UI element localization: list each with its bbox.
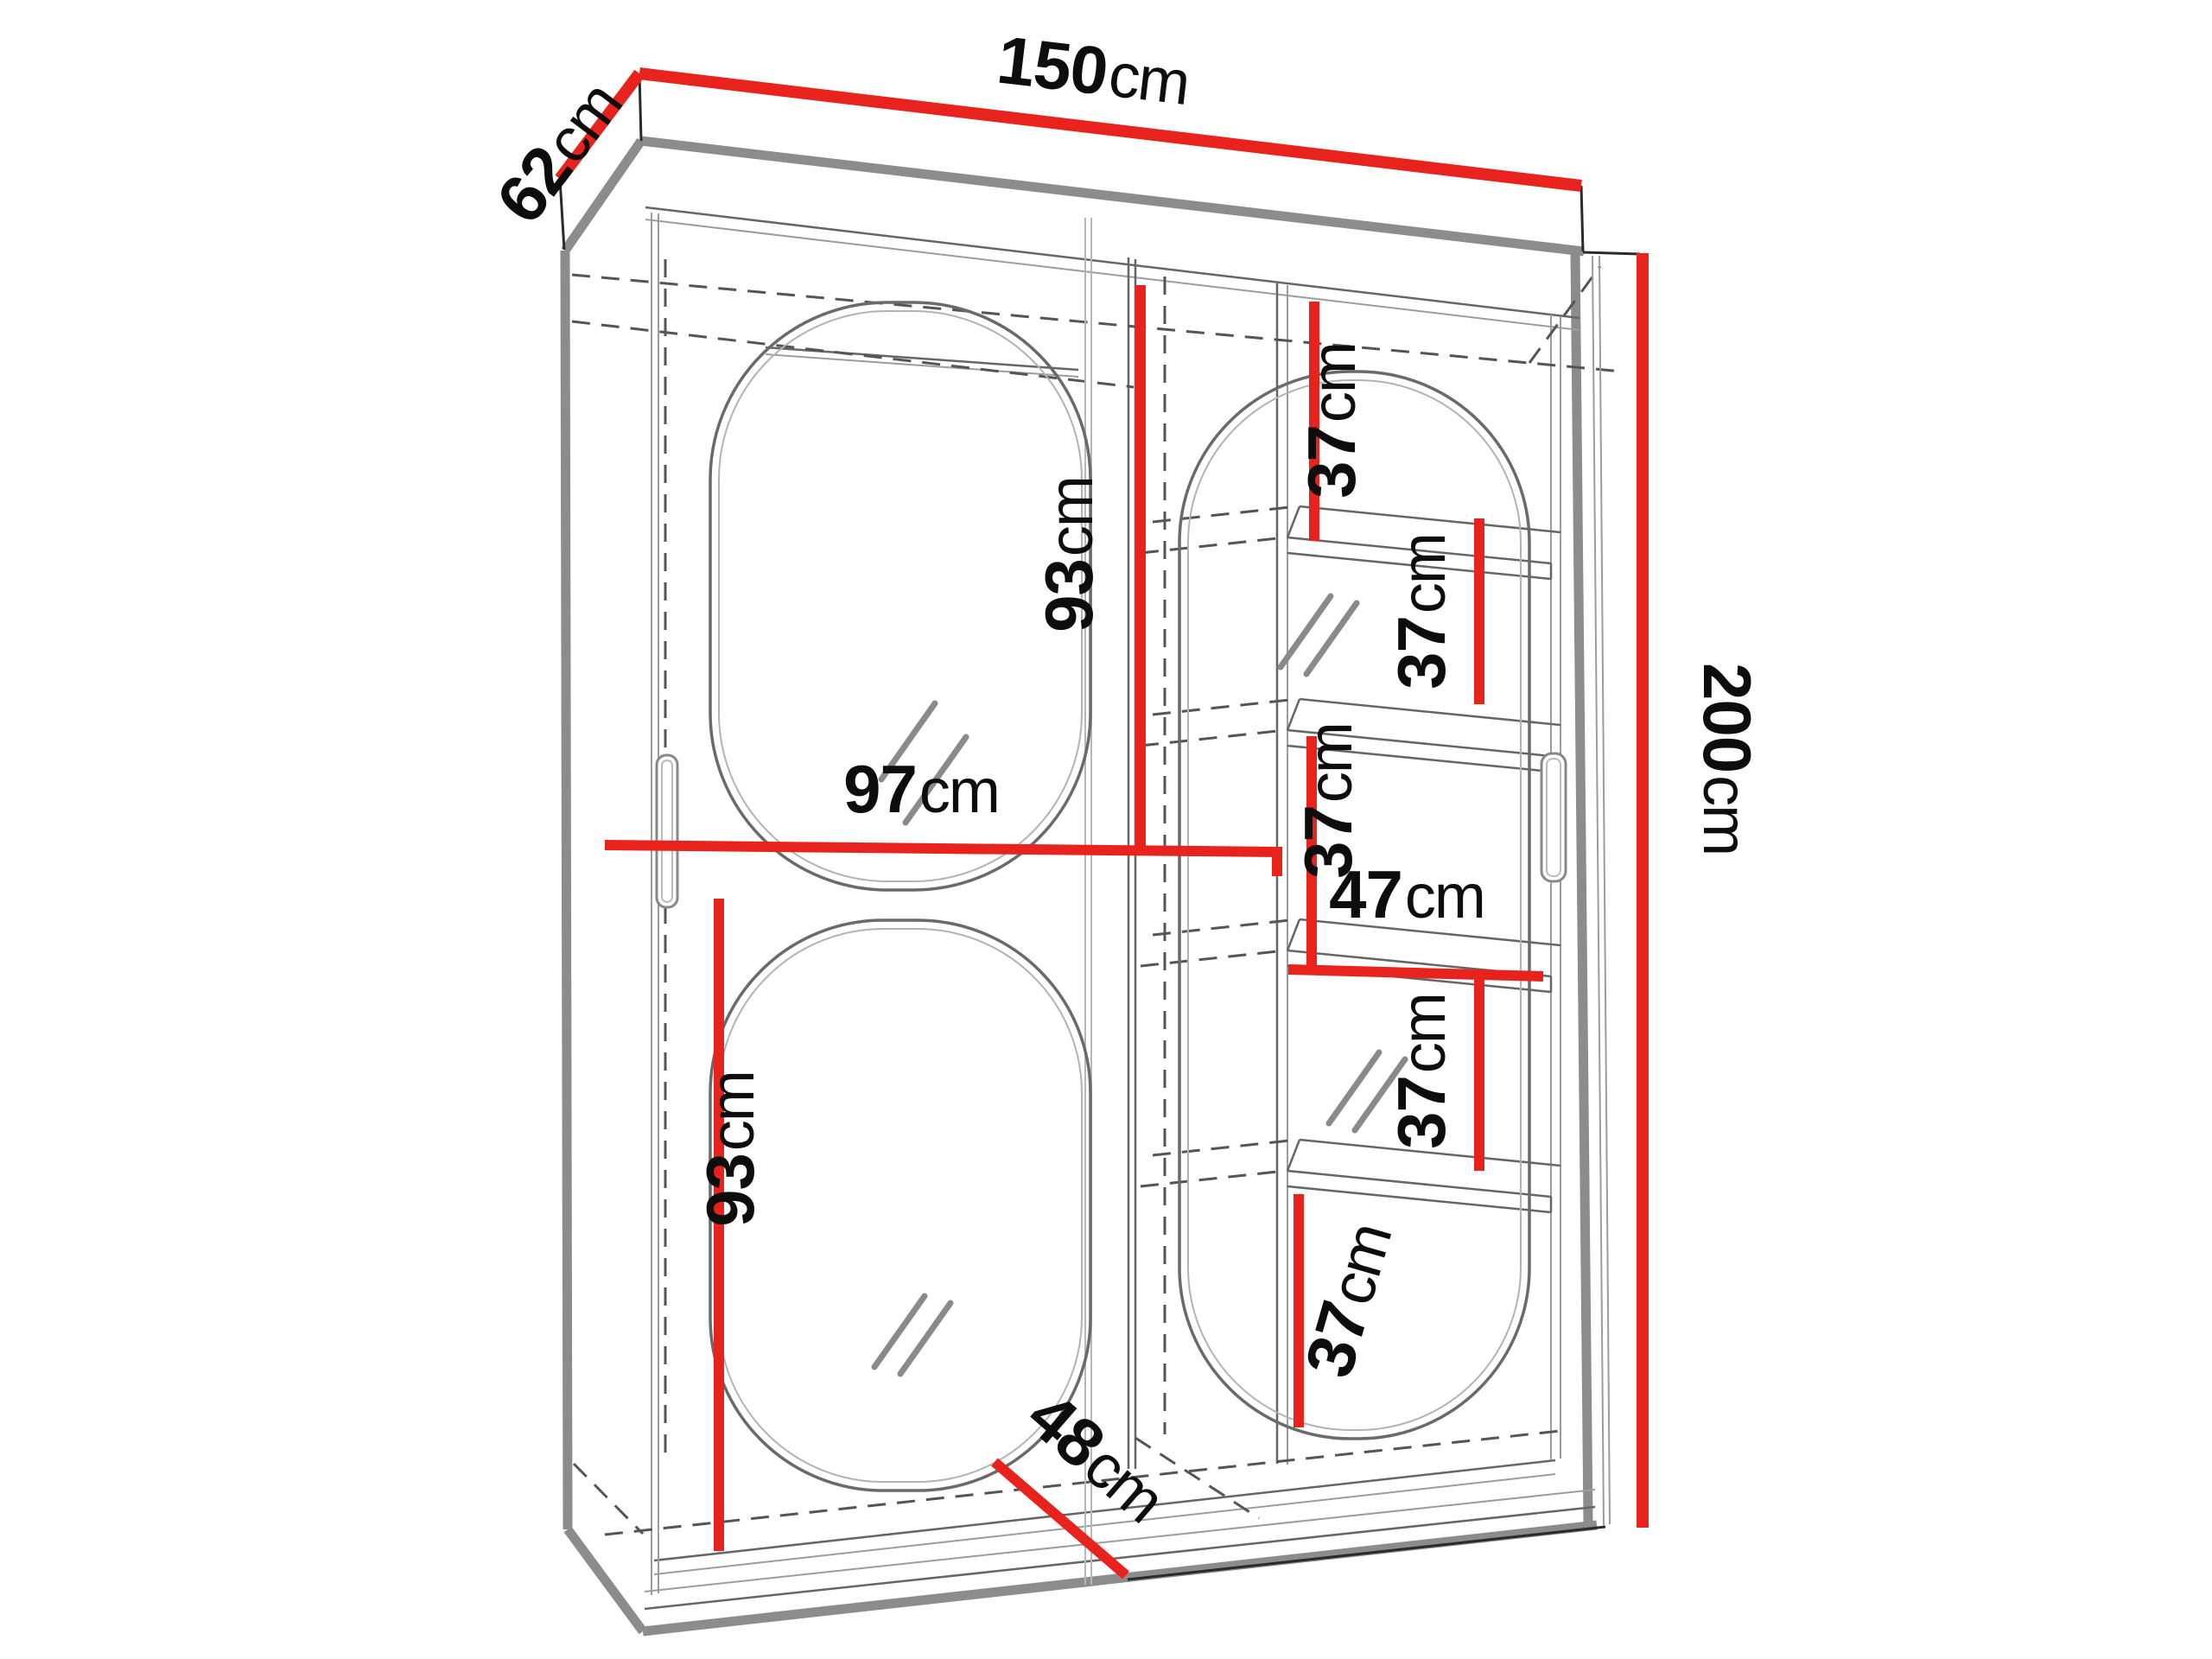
label-shelf-37-3: 37cm — [1290, 723, 1366, 879]
label-shelf-37-5: 37cm — [1290, 1215, 1406, 1385]
wardrobe-dimension-diagram: 150cm 62cm 200cm 97cm 93cm 93cm 37cm 37c… — [0, 0, 2212, 1659]
right-door-bottom-edge — [1128, 1527, 1605, 1580]
label-depth-62: 62cm — [481, 67, 635, 237]
label-width-150: 150cm — [994, 22, 1193, 119]
left-door-handle — [657, 755, 677, 907]
back-top-edge-hidden — [572, 275, 1623, 372]
left-door-right-stile — [1085, 218, 1091, 1585]
label-interior-width-97: 97cm — [843, 751, 999, 827]
carcass-top-inner-edge — [645, 207, 1580, 318]
top-slab-left-corner — [639, 73, 641, 141]
dimension-line-shelf-width-47 — [1288, 969, 1543, 976]
left-outer-edge — [565, 251, 568, 1529]
label-height-200: 200cm — [1689, 663, 1765, 855]
right-outer-edge — [1575, 251, 1588, 1523]
label-shelf-width-47: 47cm — [1329, 856, 1484, 932]
top-slab-right-corner — [1581, 186, 1583, 251]
left-door-lower-mirror-inner — [719, 929, 1082, 1482]
right-door-right-stile — [1592, 256, 1610, 1526]
label-shelf-37-2: 37cm — [1383, 534, 1459, 690]
label-shelf-37-4: 37cm — [1383, 994, 1459, 1149]
dimension-line-width-97 — [605, 845, 1277, 876]
label-lower-93: 93cm — [692, 1071, 768, 1227]
dimension-lines — [560, 73, 1643, 1575]
label-upper-93: 93cm — [1031, 477, 1107, 632]
mirror-shine-lower-left — [874, 1296, 950, 1374]
mirror-shine-right-upper — [1281, 596, 1357, 674]
diagram-canvas: 150cm 62cm 200cm 97cm 93cm 93cm 37cm 37c… — [0, 0, 2212, 1659]
right-door-handle — [1541, 753, 1566, 881]
shelf-4 — [1287, 1140, 1560, 1212]
height-dimension-connector — [1583, 252, 1640, 254]
label-shelf-37-1: 37cm — [1294, 343, 1370, 499]
bottom-left-depth-edge — [568, 1529, 643, 1631]
bottom-left-depth-hidden — [574, 1464, 643, 1534]
back-right-corner-hidden — [1529, 266, 1600, 363]
